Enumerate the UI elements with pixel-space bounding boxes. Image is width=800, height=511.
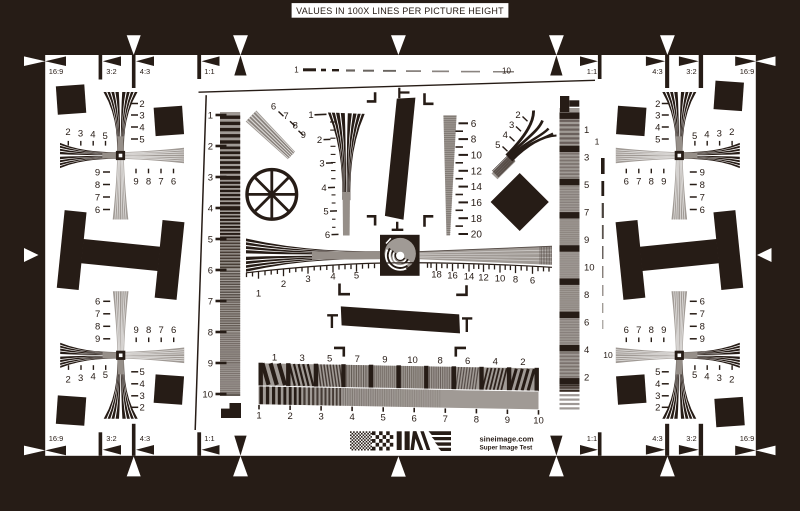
svg-text:8: 8 — [95, 322, 100, 333]
svg-text:7: 7 — [700, 192, 705, 203]
svg-text:5: 5 — [354, 271, 359, 282]
svg-text:2: 2 — [281, 279, 286, 290]
svg-text:5: 5 — [655, 134, 660, 145]
svg-text:9: 9 — [133, 176, 138, 187]
svg-text:10: 10 — [202, 389, 213, 400]
svg-text:7: 7 — [584, 207, 589, 218]
svg-text:12: 12 — [478, 273, 489, 284]
svg-text:10: 10 — [471, 151, 483, 162]
svg-text:4: 4 — [321, 183, 326, 194]
svg-text:2: 2 — [140, 403, 145, 414]
svg-text:10: 10 — [407, 355, 418, 366]
svg-text:5: 5 — [584, 180, 589, 191]
svg-text:1: 1 — [294, 66, 299, 75]
svg-text:7: 7 — [636, 176, 641, 187]
svg-text:9: 9 — [700, 334, 705, 345]
svg-text:1: 1 — [256, 410, 261, 421]
svg-text:8: 8 — [293, 120, 298, 131]
svg-text:8: 8 — [649, 325, 654, 336]
svg-text:6: 6 — [171, 325, 176, 336]
svg-text:2: 2 — [515, 110, 520, 121]
svg-text:4: 4 — [140, 379, 145, 390]
svg-text:2: 2 — [584, 372, 589, 383]
svg-text:7: 7 — [95, 309, 100, 320]
svg-text:3: 3 — [717, 373, 722, 384]
svg-text:5: 5 — [495, 140, 500, 151]
svg-text:5: 5 — [692, 370, 697, 381]
svg-text:2: 2 — [655, 403, 660, 414]
svg-text:4:3: 4:3 — [652, 67, 662, 76]
svg-text:14: 14 — [471, 182, 483, 193]
svg-text:6: 6 — [530, 276, 535, 287]
svg-text:3: 3 — [208, 172, 213, 183]
svg-text:9: 9 — [134, 325, 139, 336]
svg-text:9: 9 — [700, 167, 705, 178]
svg-text:16:9: 16:9 — [49, 434, 64, 443]
svg-text:10: 10 — [603, 350, 613, 360]
svg-text:4: 4 — [655, 122, 660, 133]
svg-text:5: 5 — [381, 413, 386, 424]
svg-text:6: 6 — [271, 102, 276, 113]
svg-text:4: 4 — [584, 345, 589, 356]
svg-text:8: 8 — [649, 176, 654, 187]
svg-text:6: 6 — [95, 297, 100, 308]
svg-text:8: 8 — [513, 275, 518, 286]
svg-text:10: 10 — [584, 262, 595, 273]
svg-text:8: 8 — [700, 322, 705, 333]
svg-text:6: 6 — [171, 176, 176, 187]
svg-text:1: 1 — [584, 125, 589, 136]
svg-text:1:1: 1:1 — [587, 434, 597, 443]
svg-text:4: 4 — [655, 379, 660, 390]
svg-text:5: 5 — [327, 353, 332, 364]
svg-text:3: 3 — [509, 120, 514, 131]
svg-text:1: 1 — [308, 110, 313, 121]
svg-text:3: 3 — [318, 412, 323, 423]
svg-text:2: 2 — [655, 99, 660, 110]
svg-text:6: 6 — [700, 205, 705, 216]
svg-text:5: 5 — [655, 367, 660, 378]
svg-text:2: 2 — [287, 411, 292, 422]
svg-text:12: 12 — [471, 166, 483, 177]
svg-text:3: 3 — [78, 373, 83, 384]
svg-text:8: 8 — [474, 414, 479, 425]
svg-text:1: 1 — [256, 289, 261, 300]
svg-text:8: 8 — [437, 355, 442, 366]
svg-text:16:9: 16:9 — [740, 434, 755, 443]
svg-text:1: 1 — [208, 110, 213, 121]
svg-text:7: 7 — [700, 309, 705, 320]
svg-text:2: 2 — [66, 374, 71, 385]
svg-text:2: 2 — [65, 127, 70, 138]
svg-text:5: 5 — [692, 131, 697, 142]
svg-text:7: 7 — [443, 414, 448, 425]
svg-text:7: 7 — [158, 176, 163, 187]
svg-text:4: 4 — [493, 356, 498, 367]
svg-text:16: 16 — [447, 271, 458, 282]
svg-text:8: 8 — [146, 325, 151, 336]
svg-text:3:2: 3:2 — [106, 434, 116, 443]
svg-text:6: 6 — [471, 119, 477, 130]
svg-text:9: 9 — [95, 167, 100, 178]
svg-text:4: 4 — [139, 122, 144, 133]
svg-text:7: 7 — [95, 192, 100, 203]
svg-text:7: 7 — [159, 325, 164, 336]
svg-text:2: 2 — [520, 357, 525, 368]
svg-text:4: 4 — [90, 372, 95, 383]
svg-text:3: 3 — [140, 391, 145, 402]
svg-text:1:1: 1:1 — [587, 67, 597, 76]
svg-text:2: 2 — [317, 135, 322, 146]
svg-text:1:1: 1:1 — [204, 67, 214, 76]
svg-text:7: 7 — [283, 111, 288, 122]
svg-text:2: 2 — [729, 374, 734, 385]
svg-text:3: 3 — [299, 353, 304, 364]
svg-text:3: 3 — [319, 158, 324, 169]
svg-text:2: 2 — [139, 99, 144, 110]
svg-text:5: 5 — [208, 234, 213, 245]
svg-text:9: 9 — [382, 354, 387, 365]
svg-text:7: 7 — [208, 296, 213, 307]
svg-text:9: 9 — [661, 176, 666, 187]
svg-text:3: 3 — [139, 110, 144, 121]
svg-text:5: 5 — [140, 367, 145, 378]
svg-text:3: 3 — [717, 129, 722, 140]
svg-text:6: 6 — [465, 356, 470, 367]
svg-text:10: 10 — [502, 67, 511, 76]
svg-text:6: 6 — [584, 317, 589, 328]
svg-text:9: 9 — [95, 334, 100, 345]
svg-text:8: 8 — [208, 327, 213, 338]
svg-text:4:3: 4:3 — [140, 67, 150, 76]
svg-text:4:3: 4:3 — [140, 434, 150, 443]
svg-text:18: 18 — [471, 214, 483, 225]
svg-text:7: 7 — [355, 354, 360, 365]
svg-text:18: 18 — [431, 270, 442, 281]
svg-text:6: 6 — [95, 205, 100, 216]
svg-text:9: 9 — [505, 415, 510, 426]
svg-text:6: 6 — [624, 176, 629, 187]
svg-text:10: 10 — [533, 416, 544, 427]
svg-text:5: 5 — [323, 206, 328, 217]
svg-text:16: 16 — [471, 198, 483, 209]
svg-text:10: 10 — [495, 274, 506, 285]
svg-text:5: 5 — [103, 131, 108, 142]
svg-text:2: 2 — [729, 127, 734, 138]
svg-text:4: 4 — [503, 130, 508, 141]
svg-text:6: 6 — [325, 230, 330, 241]
svg-text:14: 14 — [464, 272, 475, 283]
svg-text:8: 8 — [471, 135, 477, 146]
svg-text:6: 6 — [700, 297, 705, 308]
svg-text:sineimage.com: sineimage.com — [480, 434, 535, 443]
svg-text:7: 7 — [636, 325, 641, 336]
svg-text:5: 5 — [139, 134, 144, 145]
svg-text:3:2: 3:2 — [686, 434, 696, 443]
svg-text:8: 8 — [584, 290, 589, 301]
svg-text:9: 9 — [661, 325, 666, 336]
svg-text:VALUES IN 100X LINES PER PICTU: VALUES IN 100X LINES PER PICTURE HEIGHT — [296, 6, 504, 16]
svg-text:16:9: 16:9 — [49, 67, 64, 76]
svg-text:4: 4 — [704, 130, 709, 141]
svg-text:6: 6 — [208, 265, 213, 276]
svg-text:9: 9 — [584, 235, 589, 246]
svg-text:5: 5 — [103, 370, 108, 381]
svg-text:1: 1 — [595, 137, 600, 147]
svg-text:4:3: 4:3 — [652, 434, 662, 443]
svg-text:3: 3 — [655, 391, 660, 402]
svg-text:3:2: 3:2 — [106, 67, 116, 76]
svg-text:4: 4 — [349, 412, 354, 423]
svg-text:8: 8 — [146, 176, 151, 187]
svg-text:4: 4 — [208, 203, 213, 214]
svg-text:3: 3 — [584, 152, 589, 163]
svg-text:20: 20 — [471, 230, 483, 241]
svg-text:3: 3 — [78, 129, 83, 140]
svg-text:1:1: 1:1 — [204, 434, 214, 443]
svg-text:4: 4 — [704, 372, 709, 383]
svg-text:3:2: 3:2 — [686, 67, 696, 76]
svg-text:6: 6 — [412, 413, 417, 424]
svg-text:4: 4 — [330, 272, 335, 283]
svg-text:Super Image Test: Super Image Test — [480, 445, 534, 452]
svg-text:2: 2 — [208, 141, 213, 152]
svg-text:3: 3 — [305, 274, 310, 285]
svg-text:9: 9 — [208, 358, 213, 369]
svg-text:8: 8 — [95, 180, 100, 191]
svg-text:16:9: 16:9 — [740, 67, 755, 76]
svg-text:4: 4 — [90, 130, 95, 141]
svg-text:8: 8 — [700, 180, 705, 191]
svg-text:1: 1 — [272, 352, 277, 363]
svg-text:6: 6 — [624, 325, 629, 336]
svg-text:3: 3 — [655, 110, 660, 121]
